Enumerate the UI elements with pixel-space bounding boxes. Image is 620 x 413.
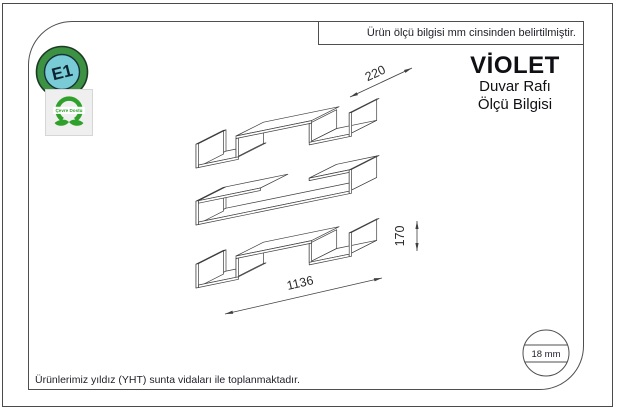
bottom-note: Ürünlerimiz yıldız (YHT) sunta vidaları …	[35, 374, 300, 386]
eco-badge: Çevre Dostu	[45, 89, 93, 136]
thickness-symbol: 18 mm	[515, 322, 585, 392]
spec-sheet-page: Ürün ölçü bilgisi mm cinsinden belirtilm…	[0, 0, 620, 413]
shelf-bottom	[196, 219, 379, 289]
eco-label: Çevre Dostu	[56, 108, 83, 113]
product-subtitle-2: Ölçü Bilgisi	[450, 97, 580, 114]
shelf-top	[196, 99, 379, 169]
dim-length-label: 1136	[285, 273, 314, 293]
dim-height: 170	[393, 221, 419, 251]
eco-ribbon-icon: Çevre Dostu	[46, 90, 92, 135]
title-block: VİOLET Duvar Rafı Ölçü Bilgisi	[450, 54, 580, 113]
dim-depth: 220	[350, 63, 412, 97]
top-note-text: Ürün ölçü bilgisi mm cinsinden belirtilm…	[367, 27, 576, 39]
dim-height-label: 170	[393, 226, 407, 247]
product-title: VİOLET	[450, 54, 580, 78]
top-note-box: Ürün ölçü bilgisi mm cinsinden belirtilm…	[318, 21, 584, 45]
dim-length: 1136	[225, 273, 382, 314]
product-subtitle-1: Duvar Rafı	[450, 79, 580, 96]
shelf-middle	[196, 156, 379, 226]
thickness-label: 18 mm	[531, 349, 560, 360]
technical-drawing: 220 170 1136	[140, 60, 440, 330]
